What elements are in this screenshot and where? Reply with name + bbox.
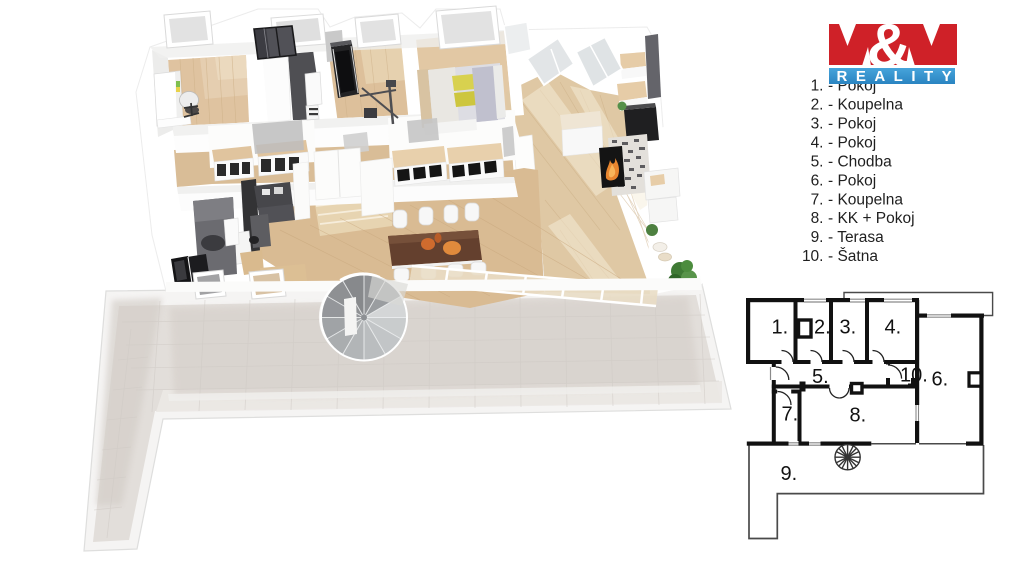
svg-text:10.: 10. bbox=[802, 248, 824, 265]
svg-text:- KK + Pokoj: - KK + Pokoj bbox=[828, 210, 915, 227]
svg-text:REALITY: REALITY bbox=[837, 68, 961, 85]
svg-text:5.: 5. bbox=[812, 366, 829, 388]
svg-text:1.: 1. bbox=[811, 78, 824, 95]
svg-text:7.: 7. bbox=[811, 191, 824, 208]
svg-text:- Koupelna: - Koupelna bbox=[828, 191, 903, 208]
svg-text:2.: 2. bbox=[811, 97, 824, 114]
svg-text:- Pokoj: - Pokoj bbox=[828, 134, 876, 151]
svg-text:- Terasa: - Terasa bbox=[828, 229, 884, 246]
svg-text:3.: 3. bbox=[811, 116, 824, 133]
svg-text:- Pokoj: - Pokoj bbox=[828, 116, 876, 133]
svg-text:4.: 4. bbox=[885, 317, 902, 339]
svg-text:- Koupelna: - Koupelna bbox=[828, 97, 903, 114]
svg-text:10.: 10. bbox=[900, 365, 928, 387]
svg-text:1.: 1. bbox=[772, 317, 789, 339]
svg-text:6.: 6. bbox=[811, 172, 824, 189]
svg-text:8.: 8. bbox=[811, 210, 824, 227]
svg-text:- Chodba: - Chodba bbox=[828, 153, 892, 170]
svg-text:- Šatna: - Šatna bbox=[828, 248, 878, 265]
svg-text:2.: 2. bbox=[814, 317, 831, 339]
svg-text:8.: 8. bbox=[850, 405, 867, 427]
svg-text:3.: 3. bbox=[840, 317, 857, 339]
svg-text:5.: 5. bbox=[811, 153, 824, 170]
svg-text:9.: 9. bbox=[781, 463, 798, 485]
svg-text:- Pokoj: - Pokoj bbox=[828, 172, 876, 189]
svg-text:7.: 7. bbox=[782, 404, 799, 426]
svg-text:4.: 4. bbox=[811, 134, 824, 151]
svg-text:9.: 9. bbox=[811, 229, 824, 246]
svg-text:6.: 6. bbox=[932, 369, 949, 391]
